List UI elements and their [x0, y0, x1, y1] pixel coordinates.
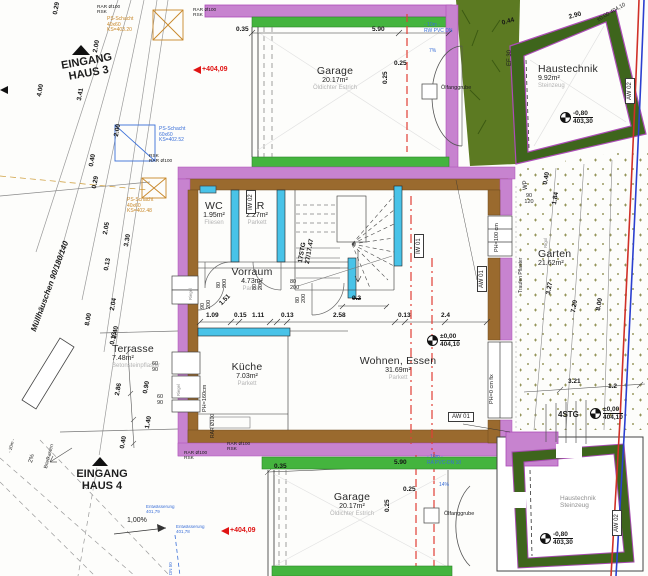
annotation: Müllhäuschen 90/180/140: [30, 240, 71, 333]
annotation: EINGANGHAUS 4: [76, 468, 127, 493]
floorplan-canvas: Garage20.17m²Öldichter EstrichHaustechni…: [0, 0, 648, 576]
dimension-label: 0.90: [142, 381, 151, 395]
ref-label: AW 02: [612, 510, 622, 536]
room-label: Garten21.62m²: [538, 249, 571, 268]
dimension-label: 2.05: [102, 222, 111, 236]
dimension-label: 2.90: [568, 11, 582, 21]
dimension-label: 0.25: [384, 499, 391, 512]
room-label: Küche7.03m²Parkett: [232, 362, 263, 387]
annotation: Entwässerung401,78: [176, 524, 205, 534]
dimension-label: 3.41: [76, 88, 85, 102]
annotation: RAR Ø100: [211, 414, 217, 438]
dimension-label: 0.13: [398, 312, 411, 319]
ref-label: AW 01: [477, 266, 487, 292]
annotation: ±0,00 404,10: [596, 2, 627, 23]
annotation: 7%: [429, 49, 436, 55]
dimension-label: 2.58: [333, 312, 346, 319]
dimension-label: 0.44: [501, 17, 515, 27]
annotation: RAR Ø100RSK: [184, 451, 207, 462]
annotation: 1,00%: [127, 517, 147, 525]
annotation: PH=160cm: [202, 385, 208, 412]
room-label: Garage20.17m²Öldichter Estrich: [313, 66, 357, 91]
annotation: 90120: [524, 193, 533, 205]
dimension-label: 0.15: [234, 312, 247, 319]
annotation: 6090: [152, 361, 158, 373]
dimension-label: 5.90: [372, 26, 385, 33]
annotation: Entwässerung401,79: [146, 504, 175, 514]
dimension-label: 1.11: [252, 312, 264, 319]
annotation: Briefkasten: [44, 444, 56, 470]
annotation: Ölfanggrube: [441, 85, 471, 91]
annotation: RSKRAR Ø100: [149, 154, 172, 165]
annotation: PH=0 cm fix: [489, 374, 495, 404]
label-layer: Garage20.17m²Öldichter EstrichHaustechni…: [0, 0, 648, 576]
annotation: Ölfanggrube: [444, 511, 474, 517]
level-marker: ±0,00404,10: [590, 406, 623, 421]
level-icon: [427, 335, 438, 346]
dimension-label: 9.2: [352, 295, 361, 302]
level-marker: -0,80403,30: [560, 110, 593, 125]
dimension-label: 2.00: [113, 124, 122, 138]
dimension-label: 0.25: [394, 60, 407, 67]
annotation: PS-Schacht60x60KS=402.52: [159, 127, 185, 144]
ref-label: AW 02: [625, 78, 635, 104]
annotation: 2%: [28, 454, 37, 464]
dimension-label: 0.35: [274, 463, 287, 470]
annotation: Riegel: [177, 384, 182, 396]
annotation: Riegel: [189, 288, 194, 300]
room-label: Wohnen, Essen31.69m²Parkett: [360, 356, 437, 381]
annotation: - 10m -RW PVC DN: [424, 23, 453, 34]
room-label: WC1.95m²Fliesen: [203, 201, 225, 226]
dimension-label: 3.21: [568, 378, 581, 385]
dimension-label: 0.25: [403, 486, 416, 493]
dimension-label: 1.40: [144, 416, 153, 430]
elevation-flag: +404,09: [193, 66, 228, 74]
level-icon: [590, 408, 601, 419]
elevation-flag: +404,09: [221, 527, 256, 535]
annotation: WP: [523, 180, 530, 190]
dimension-label: 2.04: [109, 298, 118, 312]
dimension-label: 2.4: [441, 312, 450, 319]
annotation: 90200: [200, 300, 212, 309]
annotation: 14%: [439, 483, 449, 489]
dimension-label: 0.29: [91, 176, 100, 190]
flag-icon: [221, 527, 229, 535]
dimension-label: 2.86: [114, 383, 123, 397]
dimension-label: 0.40: [542, 172, 551, 186]
annotation: RAR Ø100RSK: [227, 442, 250, 453]
dimension-label: 0.40: [119, 436, 128, 450]
dimension-label: 0.13: [281, 312, 294, 319]
dimension-label: 1.84: [551, 192, 560, 206]
annotation: 80200: [290, 279, 299, 291]
annotation: Traufen Pflaster: [519, 258, 525, 293]
annotation: 80200: [216, 279, 228, 288]
dimension-label: 0.25: [382, 71, 389, 84]
annotation: DN 50: [168, 562, 173, 575]
annotation: EF 30: [507, 50, 514, 66]
dimension-label: 3.30: [123, 234, 132, 248]
level-marker: -0,80403,30: [540, 531, 573, 546]
annotation: Rigol: [543, 238, 548, 248]
dimension-label: 1.2: [608, 383, 617, 390]
dimension-label: 8.00: [84, 313, 93, 327]
room-label: Garage20.17m²Öldichter Estrich: [330, 492, 374, 517]
level-icon: [560, 112, 571, 123]
annotation: EINGANGHAUS 3: [60, 51, 115, 84]
dimension-label: 0.29: [52, 2, 61, 16]
annotation: 17STG27/17.47: [297, 237, 316, 264]
annotation: 6090: [157, 394, 163, 406]
dimension-label: 1.09: [206, 312, 219, 319]
room-label: Haustechnik9.92m²Steinzeug: [538, 64, 598, 89]
annotation: PS-Schacht40x60KS=403.20: [107, 17, 133, 34]
level-icon: [540, 533, 551, 544]
dimension-label: 0.35: [236, 26, 249, 33]
dimension-label: 3.27: [545, 282, 554, 296]
dimension-label: 2.00: [92, 40, 101, 54]
dimension-label: 4.00: [36, 84, 45, 98]
level-marker: ±0,00404,10: [427, 333, 460, 348]
ref-label: AW 01: [448, 412, 474, 422]
ref-label: IW 01: [414, 234, 424, 258]
dimension-label: 8.00: [595, 298, 604, 312]
annotation: 4STG: [558, 411, 579, 420]
dimension-label: 5.90: [394, 459, 407, 466]
dimension-label: 7.20: [570, 300, 579, 314]
annotation: 80200: [295, 294, 307, 303]
annotation: RAR Ø100RSK: [193, 8, 216, 19]
dimension-label: 0.40: [88, 154, 97, 168]
annotation: HaustechnikSteinzeug: [560, 495, 596, 510]
flag-icon: [193, 66, 201, 74]
annotation: - 10m -RA PVC-DN 10: [427, 455, 461, 466]
annotation: PH=100 cm: [494, 223, 500, 252]
annotation: RAR Ø100RSK: [97, 5, 120, 16]
annotation: 80200: [252, 281, 264, 290]
dimension-label: 1.51: [218, 293, 232, 307]
annotation: PS-Schacht40x60KS=402.48: [127, 198, 153, 215]
annotation: - 20m -: [7, 438, 16, 453]
ref-label: IW 02: [246, 190, 256, 214]
dimension-label: 0.13: [103, 258, 112, 272]
